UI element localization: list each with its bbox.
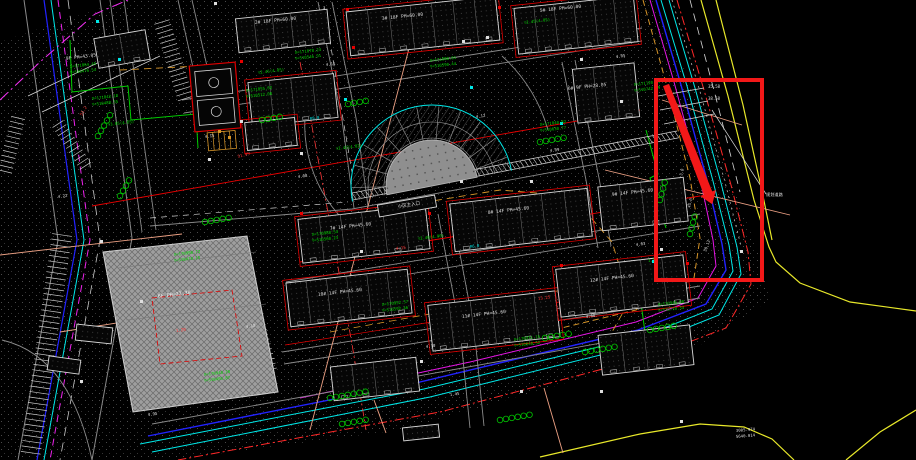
building-block bbox=[598, 177, 688, 230]
site-plan-drawing: X=171064.45Y=510476.54X=171042.18Y=51048… bbox=[0, 0, 916, 460]
cad-annotation: 38.58 bbox=[708, 96, 721, 101]
building-block bbox=[572, 63, 639, 123]
cad-annotation: 5640.014 bbox=[736, 432, 756, 439]
cad-annotation: 规划道路 bbox=[766, 191, 784, 198]
building-block bbox=[75, 324, 112, 344]
cad-viewport[interactable]: X=171064.45Y=510476.54X=171042.18Y=51048… bbox=[0, 0, 916, 460]
cad-annotation: 35.58 bbox=[708, 84, 721, 89]
